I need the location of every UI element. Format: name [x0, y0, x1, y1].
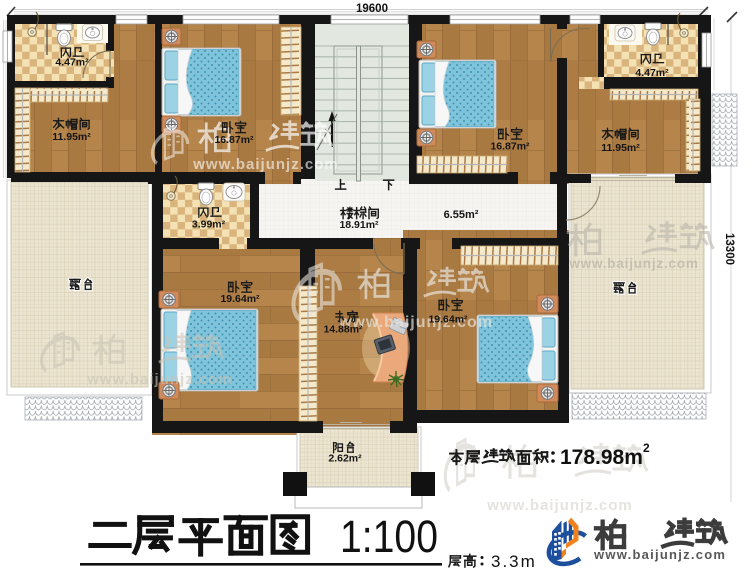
svg-text:18.91m²: 18.91m²	[339, 219, 379, 231]
svg-text:www.baijunjz.com: www.baijunjz.com	[593, 547, 726, 562]
svg-text:16.87m²: 16.87m²	[214, 134, 254, 146]
svg-text:4.47m²: 4.47m²	[55, 57, 89, 69]
svg-text:19600: 19600	[356, 3, 388, 15]
svg-text:3.99m²: 3.99m²	[192, 219, 226, 231]
svg-text:www.baijunjz.com: www.baijunjz.com	[192, 156, 338, 173]
svg-text:3.3m: 3.3m	[491, 552, 537, 571]
svg-text:19.64m²: 19.64m²	[428, 314, 468, 326]
svg-text:19.64m²: 19.64m²	[220, 293, 260, 305]
svg-text:14.88m²: 14.88m²	[323, 324, 363, 336]
svg-text:2: 2	[643, 441, 650, 455]
svg-text:www.baijunjz.com: www.baijunjz.com	[86, 371, 232, 388]
svg-text:1:100: 1:100	[340, 511, 438, 562]
svg-text:www.baijunjz.com: www.baijunjz.com	[486, 497, 632, 514]
svg-text:www.baijunjz.com: www.baijunjz.com	[568, 256, 698, 271]
svg-text:16.87m²: 16.87m²	[490, 141, 530, 153]
svg-text:6.55m²: 6.55m²	[444, 209, 479, 221]
svg-text:11.95m²: 11.95m²	[52, 131, 91, 143]
svg-text:4.47m²: 4.47m²	[635, 67, 669, 79]
svg-text:178.98m: 178.98m	[560, 446, 643, 469]
svg-text:2.62m²: 2.62m²	[328, 453, 362, 465]
svg-text:13300: 13300	[723, 233, 735, 265]
svg-text:11.95m²: 11.95m²	[601, 142, 640, 154]
